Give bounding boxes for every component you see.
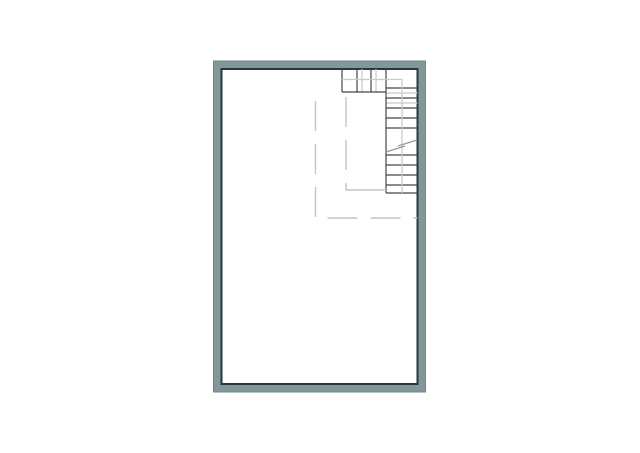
floor-plan-canvas <box>0 0 640 453</box>
floor-plan-svg <box>0 0 640 453</box>
room-walls <box>214 61 426 392</box>
floor-area <box>222 69 418 384</box>
